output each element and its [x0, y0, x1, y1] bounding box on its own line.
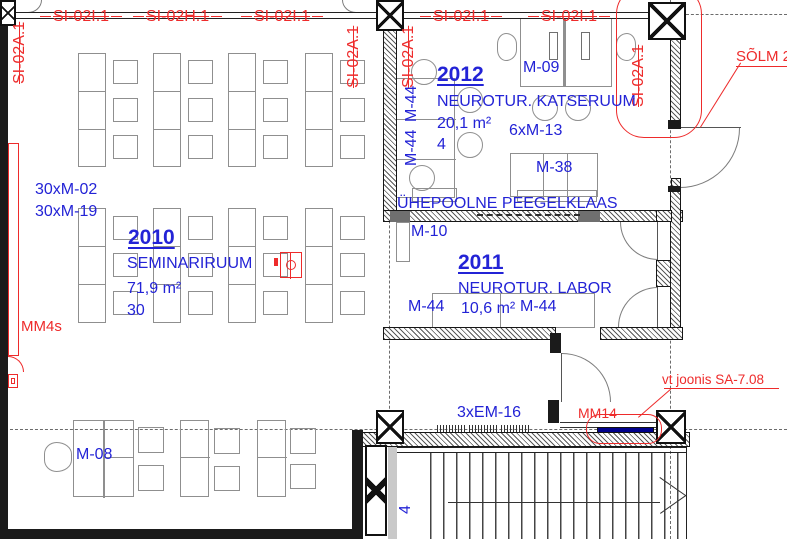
- furniture-label-m19: 30xM-19: [35, 204, 97, 221]
- furniture-label-em16: 3xEM-16: [457, 405, 521, 422]
- m10-cabinet: [396, 222, 410, 262]
- mm4s-box: [8, 374, 18, 388]
- desk: [113, 60, 138, 84]
- desk: [257, 420, 286, 497]
- door-arc: [680, 128, 740, 188]
- furniture-label-4: 4: [398, 484, 415, 514]
- annotation-mm4s: MM4s: [21, 319, 62, 335]
- column-marker: [376, 410, 404, 444]
- room-number-2011: 2011: [458, 252, 504, 274]
- desk: [188, 216, 213, 240]
- stool-icon: [457, 132, 483, 158]
- equipment-symbol-tab: [274, 258, 278, 266]
- desk: [138, 427, 164, 453]
- furniture-label-m08: M-08: [76, 447, 112, 464]
- radiator-icon: [501, 425, 530, 432]
- door-leaf: [657, 222, 658, 260]
- desk: [138, 465, 164, 491]
- stair-left-strip: [388, 447, 397, 539]
- wall-2011-bottom-right: [600, 327, 683, 340]
- desk: [340, 135, 365, 159]
- desk: [263, 216, 288, 240]
- furniture-label-m13: 6xM-13: [509, 123, 562, 140]
- furniture-label-m44-wall: M-44: [404, 120, 421, 166]
- mm4s-box-inner: [11, 378, 15, 384]
- mm4s-arc: [8, 356, 24, 372]
- furniture-label-m44-lab: M-44: [520, 299, 556, 316]
- desk: [340, 98, 365, 122]
- furniture-label-m38: M-38: [536, 160, 572, 177]
- door-jamb: [548, 400, 559, 423]
- desk: [180, 420, 209, 497]
- door-leaf: [561, 353, 562, 402]
- wall-2011-bottom-left: [383, 327, 556, 340]
- desk-divider: [258, 457, 287, 458]
- wall-2011-door-stub-top: [656, 210, 672, 222]
- wall-2012-left: [383, 24, 397, 222]
- door-arc: [562, 353, 611, 402]
- desk: [214, 466, 240, 491]
- furniture-label-m44-lab: M-44: [408, 299, 444, 316]
- room-name-2011: NEUROTUR. LABOR: [458, 281, 612, 298]
- furniture-label-m09: M-09: [523, 60, 559, 77]
- desk: [188, 98, 213, 122]
- desk: [113, 98, 138, 122]
- door-arc: [618, 287, 658, 327]
- desk: [78, 208, 106, 323]
- desk: [263, 291, 288, 315]
- room-area-2012: 20,1 m²: [437, 116, 491, 133]
- equipment-symbol-circle: [286, 260, 296, 270]
- monitor-icon: [549, 32, 558, 60]
- room-name-2010: SEMINARIRUUM: [127, 256, 252, 273]
- desk: [290, 464, 316, 489]
- desk: [263, 135, 288, 159]
- revision-cloud-solm: [616, 0, 702, 138]
- stair-landing-line: [448, 502, 660, 503]
- door-arc: [620, 222, 658, 260]
- grid-label-vertical: SI-02A.1: [12, 4, 29, 84]
- desk: [188, 135, 213, 159]
- grid-label: SI-02I.1: [239, 9, 325, 26]
- desk: [188, 60, 213, 84]
- desk: [263, 98, 288, 122]
- chair-icon: [497, 33, 517, 61]
- mirror-glass-dashed-line: [477, 214, 580, 216]
- grid-label-vertical: SI-02A.1: [346, 8, 363, 88]
- chair-icon: [44, 442, 72, 472]
- wall-stair-left: [352, 430, 363, 539]
- furniture-label-m10: M-10: [411, 224, 447, 241]
- note-mirror-glass: ÜHEPOOLNE PEEGELKLAAS: [397, 196, 618, 213]
- leader-underline-solm: [736, 66, 787, 67]
- desk: [305, 208, 333, 323]
- furniture-label-m02: 30xM-02: [35, 182, 97, 199]
- annotation-solm: SÕLM 2: [736, 49, 787, 65]
- desk: [153, 53, 181, 167]
- room-area-2011: 10,6 m²: [461, 301, 515, 318]
- room-seats-2012: 4: [437, 137, 446, 154]
- monitor-icon: [581, 32, 590, 60]
- desk: [214, 428, 240, 454]
- desk: [263, 60, 288, 84]
- room-name-2012: NEUROTUR. KATSERUUM: [437, 94, 636, 111]
- desk-divider: [181, 457, 210, 458]
- door-jamb: [550, 333, 561, 353]
- leader-underline-vt: [664, 388, 779, 389]
- room-number-2012: 2012: [437, 64, 484, 86]
- desk: [113, 135, 138, 159]
- stair-right-edge: [686, 447, 687, 539]
- room-seats-2010: 30: [127, 303, 145, 320]
- desk: [340, 291, 365, 315]
- mm4s-riser: [8, 143, 19, 356]
- desk: [305, 53, 333, 167]
- wall-2011-between-doors: [656, 260, 671, 287]
- desk: [78, 53, 106, 167]
- desk: [188, 291, 213, 315]
- radiator-icon: [437, 425, 466, 432]
- floor-plan: SI-02I.1 SI-02H.1 SI-02I.1 SI-02I.1 SI-0…: [0, 0, 787, 539]
- grid-label: SI-02I.1: [526, 9, 612, 26]
- wall-bottom: [0, 529, 363, 539]
- annotation-mm14: MM14: [578, 406, 617, 421]
- room-number-2010: 2010: [128, 227, 175, 249]
- equipment-symbol-red: [280, 252, 302, 278]
- grid-label: SI-02I.1: [418, 9, 504, 26]
- desk: [340, 216, 365, 240]
- room-area-2010: 71,9 m²: [127, 281, 181, 298]
- radiator-icon: [469, 425, 498, 432]
- desk: [340, 253, 365, 277]
- shaft-marker: [365, 445, 387, 536]
- leader-line-solm: [700, 63, 741, 128]
- stair-treads: [430, 453, 686, 539]
- grid-label: SI-02H.1: [131, 9, 224, 26]
- desk: [290, 428, 316, 454]
- door-leaf: [657, 287, 658, 327]
- furniture-label-m44-wall: M-44: [404, 76, 421, 122]
- desk: [228, 53, 256, 167]
- wall-left: [0, 12, 8, 539]
- annotation-vt-joonis: vt joonis SA-7.08: [662, 373, 764, 387]
- grid-label: SI-02I.1: [38, 9, 124, 26]
- door-jamb: [668, 186, 681, 192]
